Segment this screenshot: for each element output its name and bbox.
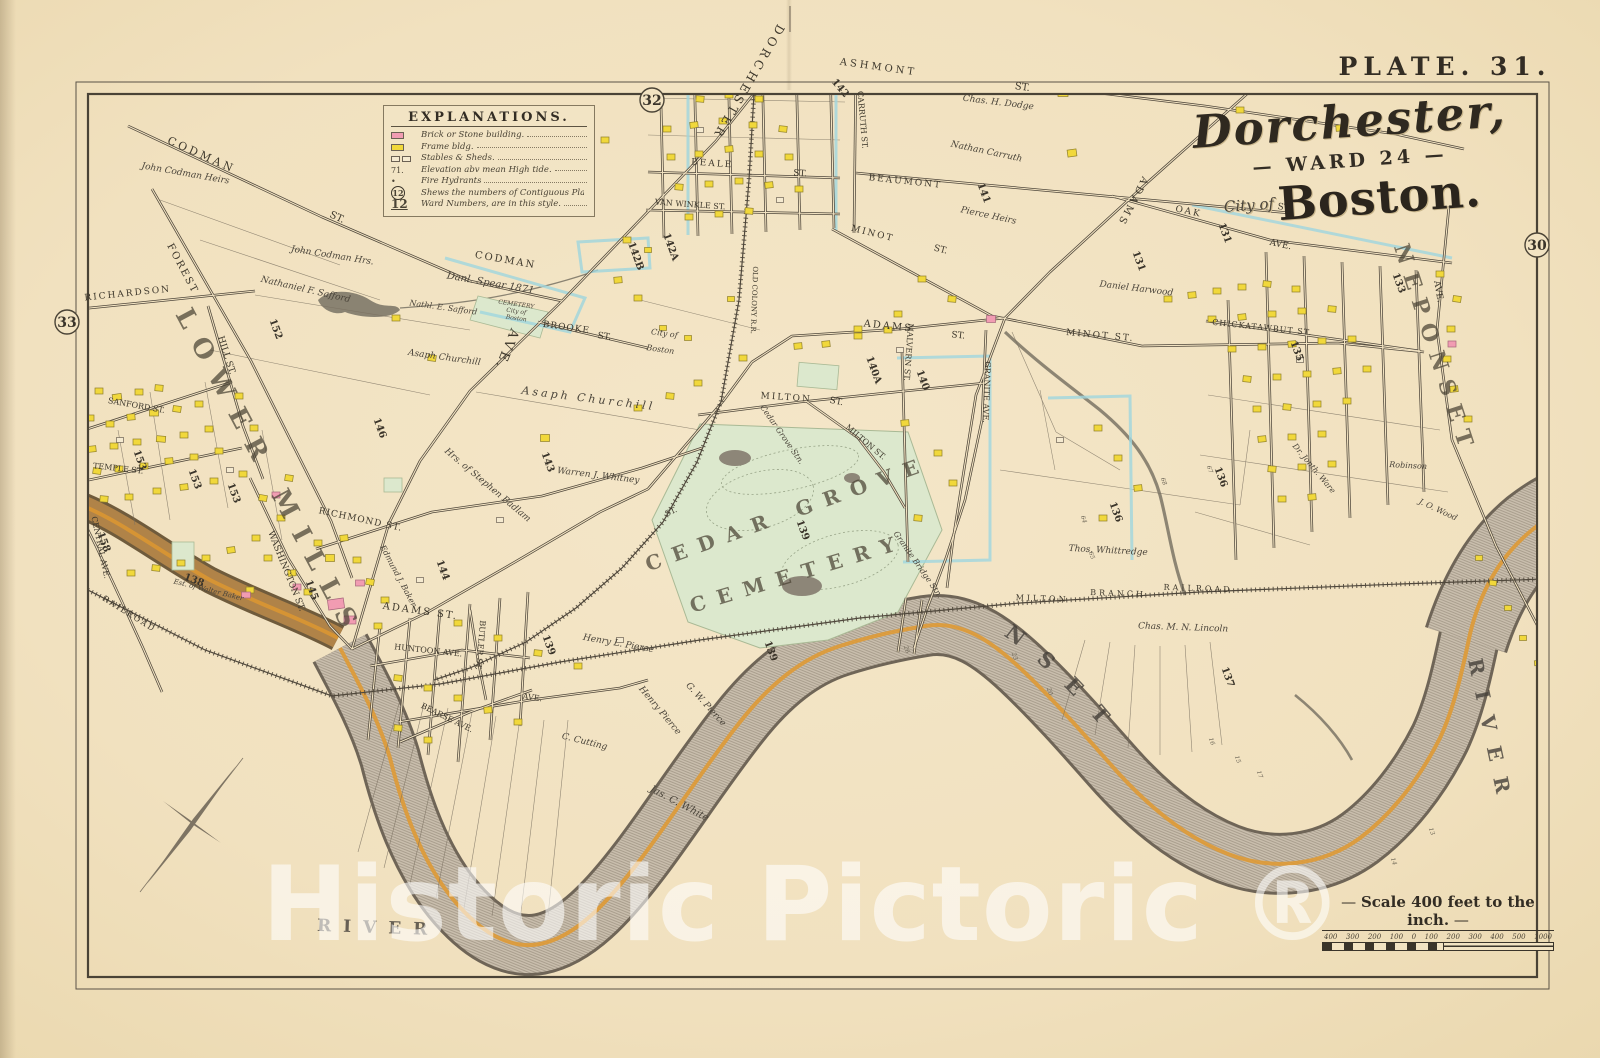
frame-building: [1476, 556, 1483, 561]
frame-building: [205, 426, 213, 432]
property-label: Nathan Carruth: [949, 139, 1023, 164]
frame-building: [394, 725, 402, 732]
street-label: ADAMS ST.: [381, 601, 459, 623]
street-label: ST.: [829, 396, 844, 408]
frame-building: [694, 380, 702, 386]
frame-building: [795, 186, 803, 192]
property-label: Chas. M. N. Lincoln: [1138, 621, 1229, 634]
frame-building: [794, 343, 802, 350]
legend-swatch-yellow: [391, 144, 421, 151]
legend-item: 71.Elevation abv mean High tide.: [391, 165, 587, 177]
frame-building: [1094, 425, 1102, 431]
frame-building: [634, 295, 642, 301]
frame-building: [1447, 326, 1455, 332]
block-number-label: 152: [267, 317, 284, 340]
scale-tick: 0: [1412, 933, 1416, 941]
frame-building: [675, 184, 683, 191]
frame-building: [822, 341, 831, 348]
frame-building: [663, 126, 671, 132]
property-label: Boston: [645, 343, 675, 356]
legend-item-label: Ward Numbers, are in this style.: [421, 199, 561, 211]
frame-building: [156, 436, 165, 443]
frame-building: [1099, 515, 1107, 521]
street-label: ST.: [328, 210, 346, 226]
frame-building: [755, 96, 763, 102]
frame-building: [725, 146, 733, 153]
property-label: Chas. H. Dodge: [962, 94, 1034, 113]
frame-building: [239, 471, 247, 477]
scale-tick: 500: [1512, 933, 1525, 941]
frame-building: [1238, 284, 1246, 290]
property-label: Pierce Heirs: [959, 205, 1018, 227]
frame-building: [100, 496, 108, 503]
small-number-label: 64: [1079, 515, 1088, 525]
contiguous-plate-number: 32: [642, 93, 661, 109]
small-number-label: 13: [1427, 827, 1436, 837]
frame-building: [1283, 404, 1291, 411]
stable-shed: [697, 128, 704, 133]
block-number-label: 131: [1130, 249, 1147, 272]
frame-building: [1258, 436, 1267, 443]
frame-building: [713, 62, 721, 69]
frame-building: [715, 211, 723, 217]
frame-building: [153, 488, 161, 494]
frame-building: [133, 439, 141, 445]
street-label: CARRUTH ST.: [855, 91, 869, 149]
block-number-label: 137: [1219, 665, 1236, 688]
frame-building: [749, 122, 757, 128]
frame-building: [949, 480, 957, 486]
street-label: BEAUMONT: [868, 173, 942, 191]
street-label: RAILROAD: [1163, 583, 1232, 594]
property-label: J. O. Wood: [1416, 496, 1459, 522]
street-label: RAILROAD: [101, 594, 158, 634]
small-number-label: 68: [1159, 477, 1168, 487]
creek: [1295, 695, 1352, 760]
frame-building: [76, 500, 84, 506]
property-label: Hrs. of Stephen Badlam: [441, 446, 532, 525]
frame-building: [180, 432, 188, 438]
frame-building: [1067, 149, 1077, 157]
legend: EXPLANATIONS. Brick or Stone building.Fr…: [383, 105, 595, 217]
block-number-label: 143: [539, 450, 556, 473]
frame-building: [745, 208, 753, 215]
frame-building: [1292, 286, 1300, 292]
stable-shed: [117, 438, 124, 443]
frame-building: [127, 570, 135, 576]
block-number-label: 140: [914, 368, 931, 391]
frame-building: [1136, 87, 1144, 93]
frame-building: [918, 276, 926, 282]
small-number-label: 65: [1087, 551, 1096, 561]
street-label: ST.: [597, 331, 612, 343]
property-label: Asaph Churchill: [406, 348, 481, 368]
compass-needle: [140, 758, 243, 892]
frame-building: [1348, 336, 1356, 342]
frame-building: [165, 458, 173, 465]
title-city-of: City of: [1223, 194, 1274, 215]
frame-building: [78, 395, 87, 402]
frame-building: [755, 151, 763, 157]
scanned-atlas-page: { "page":{"plate_label":"PLATE. 31.","wa…: [0, 0, 1600, 1058]
frame-building: [152, 565, 161, 572]
legend-item-label: Fire Hydrants: [421, 176, 481, 188]
frame-building: [110, 443, 118, 449]
frame-building: [340, 535, 349, 542]
contiguous-plate-number: 33: [57, 315, 76, 331]
legend-item-label: Frame bldg.: [421, 142, 474, 154]
stable-shed: [897, 348, 904, 353]
small-number-label: 15: [1233, 755, 1242, 765]
frame-building: [1263, 281, 1272, 288]
frame-building: [1213, 288, 1221, 294]
street-label: OLD COLONY R.R.: [749, 266, 759, 334]
frame-building: [1520, 636, 1527, 641]
block-number-label: 142B: [625, 240, 645, 271]
property-label: John Codman Hrs.: [288, 244, 374, 267]
frame-building: [685, 214, 693, 220]
property-label: Henry Pierce: [636, 684, 683, 737]
frame-building: [728, 297, 735, 302]
frame-building: [779, 126, 788, 133]
frame-building: [1559, 247, 1567, 254]
frame-building: [514, 719, 522, 725]
frame-building: [195, 401, 203, 407]
frame-building: [1453, 295, 1462, 302]
stable-shed: [1057, 438, 1064, 443]
scale-tick: 200: [1447, 933, 1460, 941]
frame-building: [645, 248, 652, 253]
frame-building: [695, 151, 703, 157]
frame-building: [901, 420, 909, 427]
street-label: ST.: [951, 330, 966, 341]
scale-tick: 100: [1390, 933, 1403, 941]
property-label: Asaph Churchill: [520, 384, 656, 413]
frame-building: [180, 484, 189, 491]
watermark: Historic Pictoric ®: [262, 845, 1362, 965]
block-number-label: 144: [434, 558, 451, 581]
street-label: MINOT ST.: [1066, 328, 1135, 344]
legend-item-label: Elevation abv mean High tide.: [421, 165, 552, 177]
frame-building: [1556, 337, 1564, 343]
frame-building: [106, 421, 114, 427]
brick-building: [1448, 341, 1456, 347]
frame-building: [424, 685, 432, 691]
frame-building: [1318, 338, 1326, 344]
brick-building: [709, 53, 717, 59]
frame-building: [934, 450, 942, 456]
property-label: C. Cutting: [561, 732, 609, 753]
frame-building: [1114, 455, 1122, 461]
frame-building: [202, 555, 210, 561]
frame-building: [1243, 376, 1252, 383]
block-number-label: 153: [225, 481, 242, 504]
property-label: Robinson: [1388, 460, 1427, 471]
frame-building: [1308, 494, 1316, 501]
stable-shed: [497, 518, 504, 523]
frame-building: [1278, 496, 1286, 502]
frame-building: [127, 414, 135, 421]
frame-building: [948, 296, 956, 303]
page-fold-shade: [786, 0, 792, 90]
frame-building: [264, 555, 272, 561]
scale-tick: 1000: [1534, 933, 1552, 941]
property-label: City of: [650, 327, 680, 340]
frame-building: [1318, 431, 1326, 437]
legend-item-label: Brick or Stone building.: [421, 130, 524, 142]
legend-swatch-pink: [391, 132, 421, 139]
street-label: MILTON: [760, 391, 812, 405]
plate-number-label: PLATE. 31.: [1330, 52, 1560, 81]
property-label: Danl. Spear 1871: [445, 270, 535, 296]
frame-building: [252, 535, 260, 541]
frame-building: [1436, 271, 1444, 277]
frame-building: [601, 137, 609, 143]
block-number-label: 146: [371, 416, 388, 439]
frame-building: [541, 435, 550, 442]
frame-building: [655, 70, 663, 76]
block-number-label: 136: [1107, 500, 1124, 523]
frame-building: [735, 178, 743, 184]
frame-building: [1298, 464, 1306, 470]
legend-item: 12Ward Numbers, are in this style.: [391, 199, 587, 211]
frame-building: [177, 560, 185, 566]
brick-building: [24, 513, 32, 519]
frame-building: [353, 557, 361, 563]
street-label: AVE.: [491, 325, 522, 372]
legend-swatch-ward: 12: [391, 199, 421, 211]
frame-building: [494, 635, 502, 641]
frame-building: [1328, 306, 1336, 313]
legend-swatch-elev: 71.: [391, 165, 421, 177]
frame-building: [62, 389, 71, 395]
street-label: ASHMONT: [838, 57, 917, 79]
street-label: MILTON: [1015, 593, 1068, 604]
frame-building: [1328, 461, 1336, 467]
frame-building: [854, 326, 862, 332]
legend-item-label: Stables & Sheds.: [421, 153, 495, 165]
frame-building: [374, 623, 382, 629]
frame-building: [854, 333, 862, 339]
legend-item: 12Shews the numbers of Contiguous Plates…: [391, 188, 587, 200]
frame-building: [155, 385, 163, 392]
frame-building: [1489, 580, 1497, 586]
brick-building: [356, 580, 365, 586]
brick-building: [987, 316, 996, 323]
frame-building: [765, 182, 774, 189]
street-label: ST.: [933, 244, 949, 257]
stable-shed: [777, 198, 784, 203]
frame-building: [135, 389, 143, 395]
frame-building: [1134, 485, 1143, 492]
frame-building: [366, 578, 375, 585]
small-number-label: 14: [1389, 857, 1398, 867]
legend-title: EXPLANATIONS.: [391, 110, 587, 127]
frame-building: [71, 470, 79, 476]
property-label: Daniel Harwood: [1098, 279, 1174, 298]
frame-building: [1238, 314, 1247, 321]
legend-item-label: Shews the numbers of Contiguous Plates.: [421, 188, 584, 200]
frame-building: [190, 454, 198, 460]
frame-building: [392, 315, 400, 321]
frame-building: [1363, 366, 1371, 372]
street-label: ST.: [793, 169, 808, 180]
scale-tick: 100: [1425, 933, 1438, 941]
frame-building: [770, 74, 778, 80]
frame-building: [95, 388, 103, 394]
legend-swatch-sheds: [391, 156, 421, 162]
frame-building: [173, 405, 182, 412]
small-number-label: 16: [1207, 737, 1216, 747]
property-label: Nathaniel F. Safford: [259, 275, 352, 306]
street-label: GRANITE AVE.: [981, 361, 992, 423]
page-edge-shade: [0, 0, 16, 1058]
frame-building: [1273, 374, 1281, 380]
frame-building: [484, 707, 492, 714]
small-number-label: 67: [1205, 465, 1214, 475]
frame-building: [66, 441, 74, 447]
frame-building: [454, 695, 462, 701]
cemetery-pond: [719, 450, 751, 466]
frame-building: [1228, 346, 1236, 352]
frame-building: [1313, 401, 1321, 407]
street-label: BROOKE: [542, 320, 590, 337]
frame-building: [914, 515, 922, 522]
street-label: CHICKATAWBUT ST.: [1212, 318, 1313, 337]
contiguous-plate-number: 30: [1527, 238, 1547, 254]
property-label: Warren J. Whitney: [557, 466, 641, 486]
property-label: Thos. Whittredge: [1068, 544, 1148, 558]
legend-item: Brick or Stone building.: [391, 130, 587, 142]
frame-building: [1268, 466, 1276, 473]
block-number-label: 140A: [863, 355, 883, 386]
frame-building: [210, 478, 218, 484]
block-number-label: 142A: [660, 232, 680, 263]
stable-shed: [417, 578, 424, 583]
frame-building: [1333, 368, 1341, 375]
frame-building: [424, 737, 432, 743]
frame-building: [1298, 308, 1306, 314]
frame-building: [666, 393, 674, 400]
frame-building: [1188, 292, 1196, 299]
legend-item: Frame bldg.: [391, 142, 587, 154]
frame-building: [684, 66, 692, 72]
legend-item: Stables & Sheds.: [391, 153, 587, 165]
frame-building: [215, 448, 223, 454]
frame-building: [696, 96, 704, 103]
frame-building: [705, 181, 713, 187]
property-label: Henry L. Pierce: [581, 633, 654, 656]
block-number-label: 142: [829, 77, 851, 100]
property-label: Dr. Jonth. Ware: [1290, 441, 1338, 495]
map-title-block: Dorchester, — WARD 24 — City ofBoston.: [1191, 84, 1509, 236]
frame-building: [685, 336, 692, 341]
scale-tick: 300: [1468, 933, 1481, 941]
frame-building: [394, 675, 403, 682]
frame-building: [1288, 434, 1296, 440]
scale-tick: 200: [1368, 933, 1381, 941]
frame-building: [574, 663, 582, 669]
frame-building: [1258, 344, 1266, 350]
frame-building: [739, 355, 747, 361]
frame-building: [1343, 398, 1351, 404]
frame-building: [894, 311, 902, 317]
brick-building: [43, 524, 57, 533]
frame-building: [667, 154, 675, 160]
frame-building: [534, 650, 543, 657]
frame-building: [1253, 406, 1261, 412]
frame-building: [1268, 311, 1276, 317]
frame-building: [1303, 371, 1311, 377]
frame-building: [125, 494, 133, 500]
frame-building: [785, 154, 793, 160]
scale-tick: 400: [1490, 933, 1503, 941]
block-number-label: 136: [1212, 465, 1229, 488]
stable-shed: [227, 468, 234, 473]
frame-building: [227, 546, 236, 553]
frame-building: [1505, 606, 1512, 611]
street-label: BRANCH: [1090, 588, 1146, 599]
street-label: AVE.: [1268, 238, 1293, 253]
frame-building: [614, 277, 622, 284]
small-number-label: 17: [1255, 770, 1264, 780]
street-label: ST.: [1014, 81, 1031, 94]
